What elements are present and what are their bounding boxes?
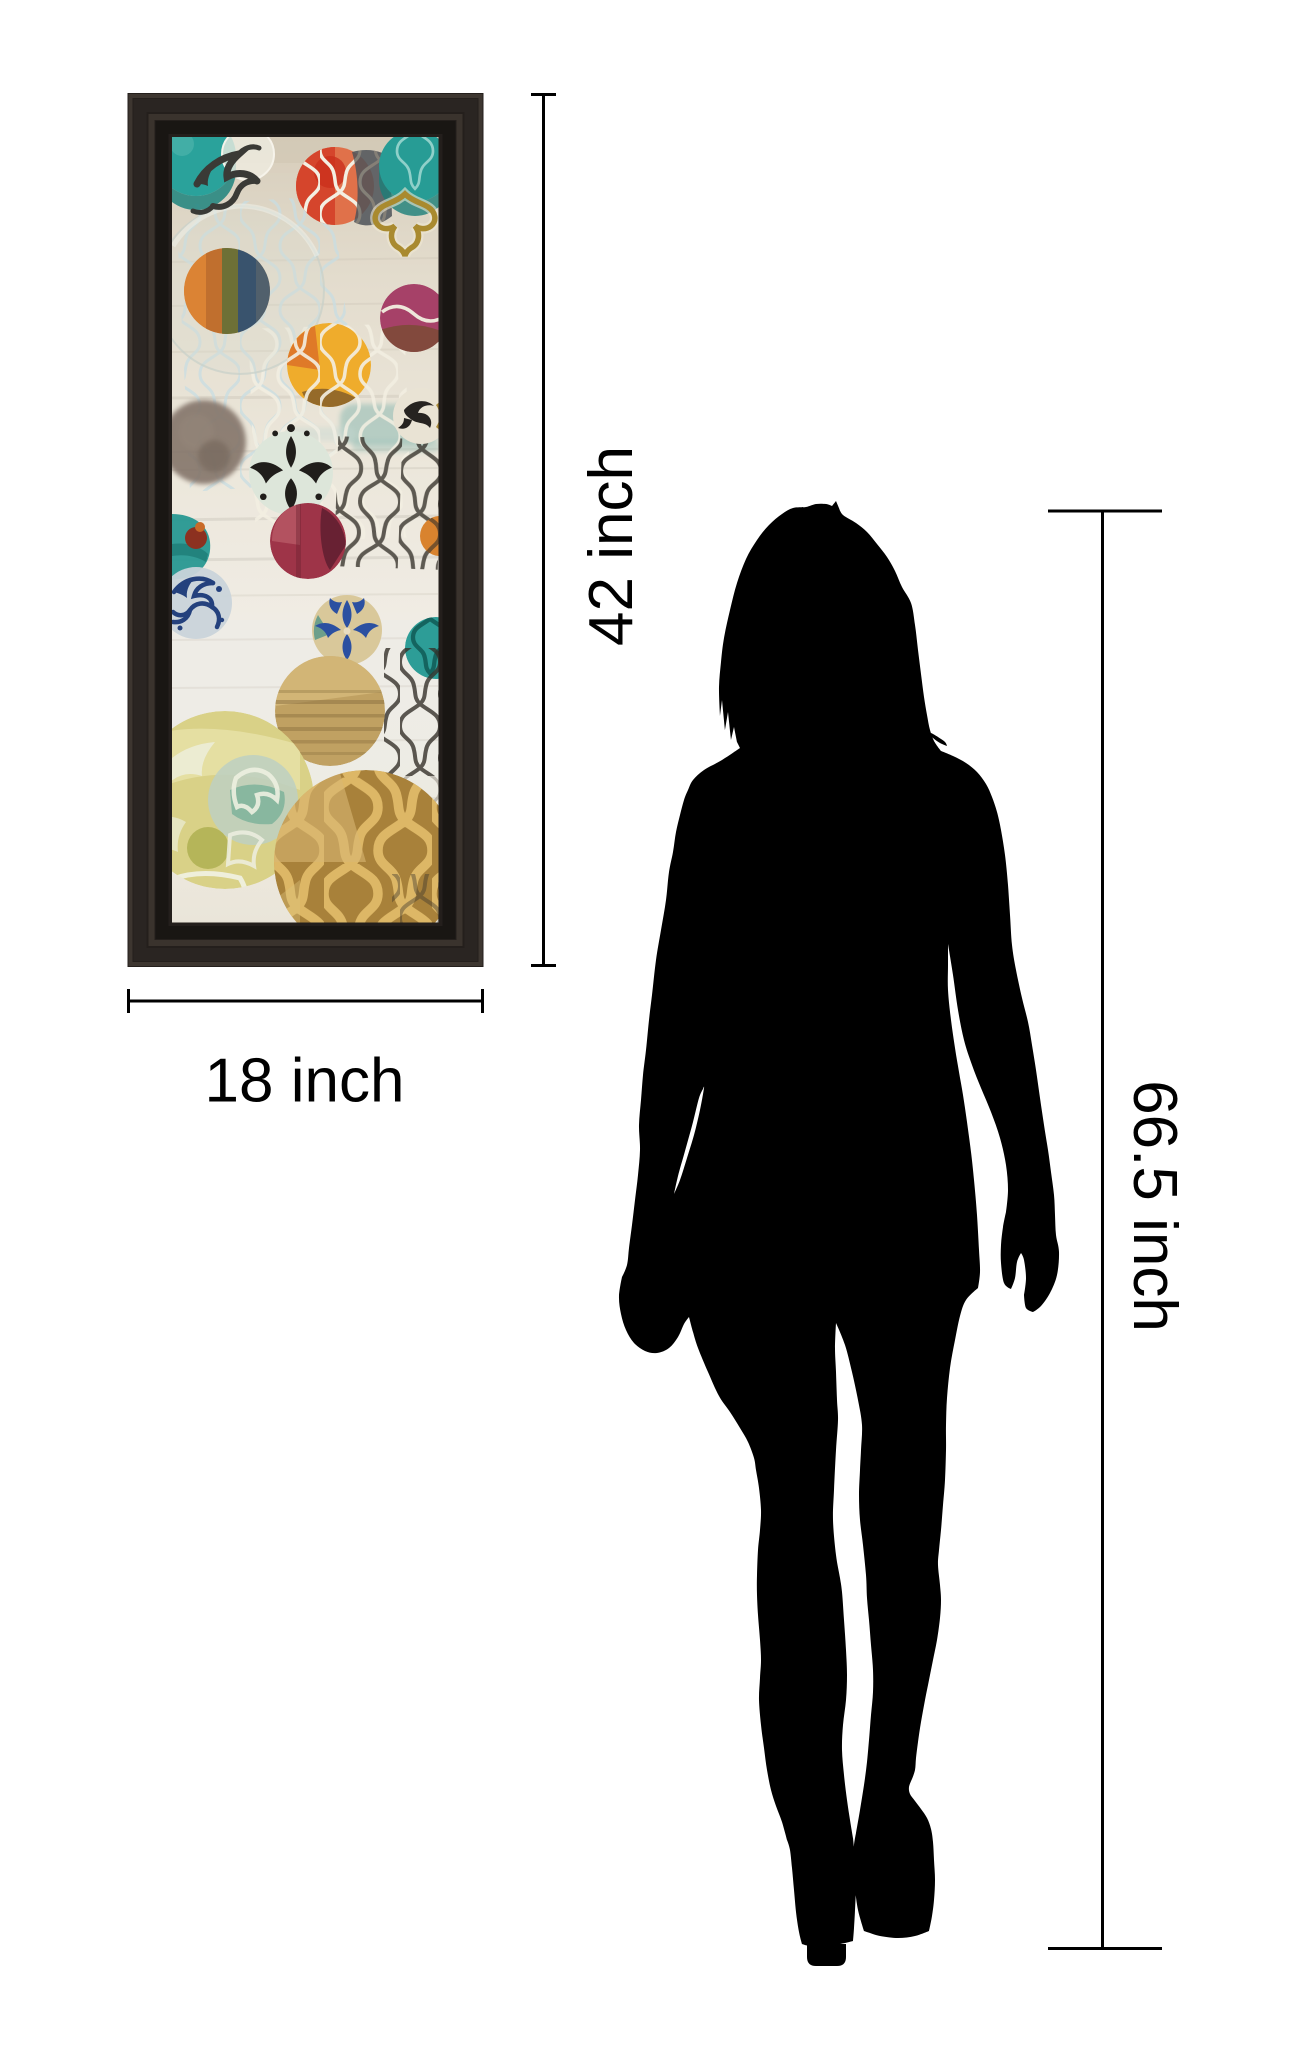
svg-text:18 inch: 18 inch (205, 1047, 405, 1116)
svg-text:66.5 inch: 66.5 inch (1120, 1080, 1189, 1332)
svg-text:42 inch: 42 inch (577, 446, 646, 646)
